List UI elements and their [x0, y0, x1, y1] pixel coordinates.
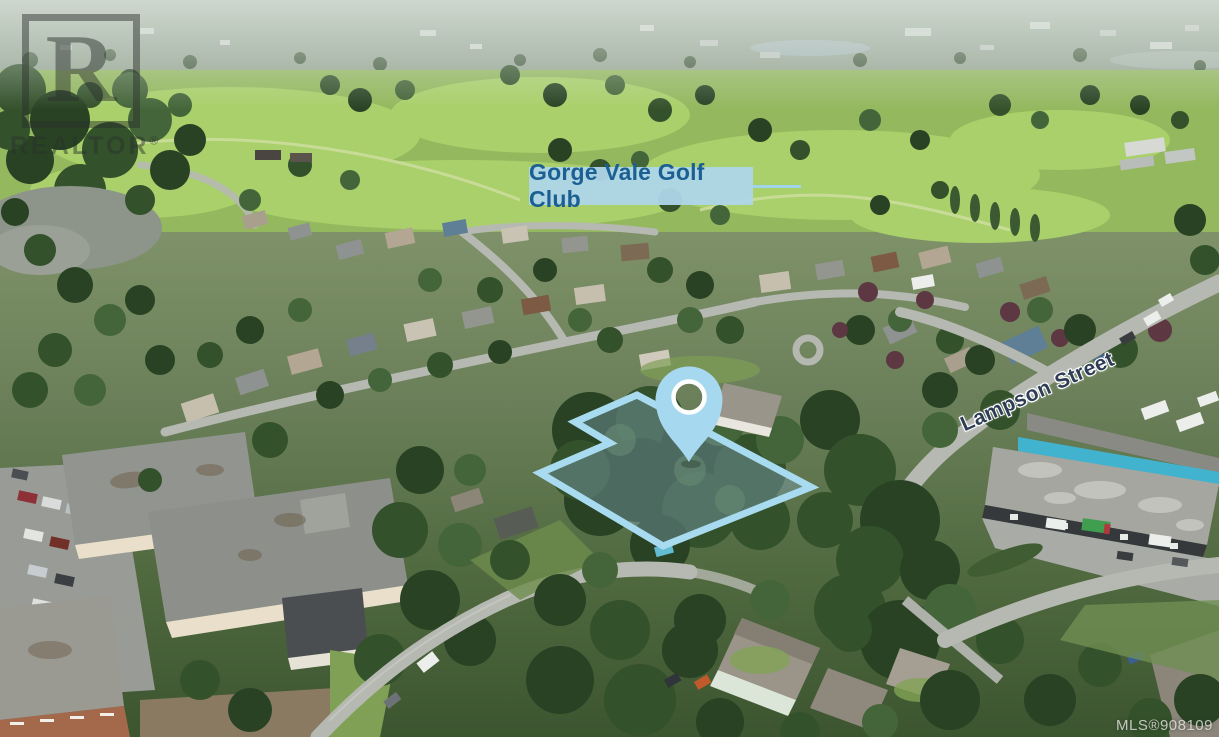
aerial-listing-photo: Gorge Vale Golf Club Lampson Street R RE… [0, 0, 1219, 737]
realtor-wordmark-text: REALTOR [10, 132, 150, 160]
atmospheric-haze [0, 0, 1219, 110]
aerial-scene [0, 0, 1219, 737]
realtor-logo: R [22, 14, 140, 128]
realtor-watermark: R REALTOR® [10, 14, 160, 161]
realtor-wordmark: REALTOR® [10, 132, 160, 161]
golf-club-leader-line [753, 185, 801, 188]
mls-number: MLS®908109 [1116, 717, 1213, 734]
golf-club-label: Gorge Vale Golf Club [529, 167, 753, 205]
registered-mark: ® [150, 134, 159, 148]
realtor-logo-letter: R [46, 20, 117, 118]
golf-club-label-text: Gorge Vale Golf Club [529, 159, 753, 213]
